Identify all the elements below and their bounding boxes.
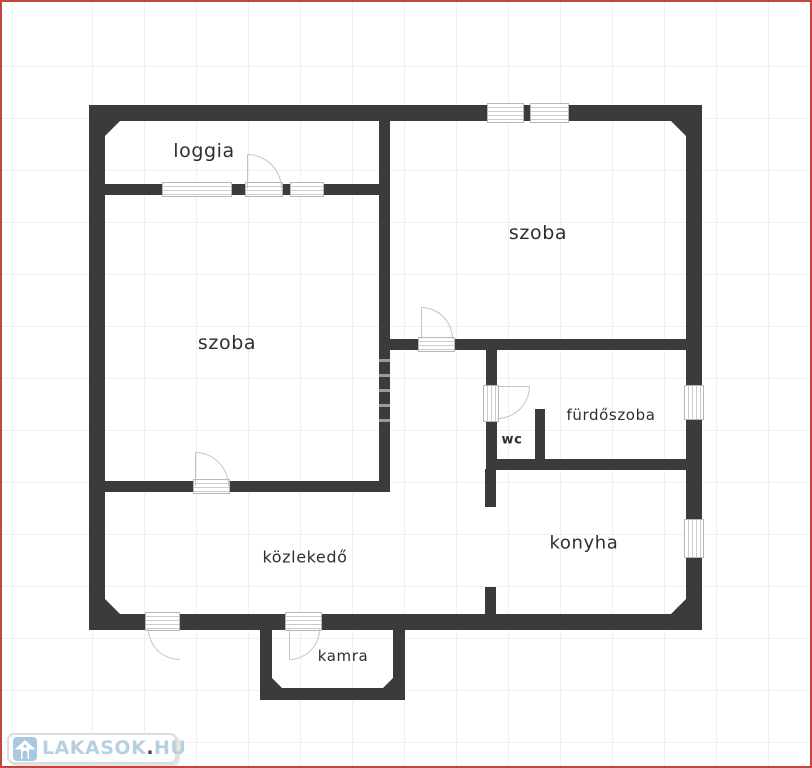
room-label-kozlekedo: közlekedő [262, 548, 347, 567]
door-leaf-szoba-right-icon [418, 337, 455, 352]
room-label-kamra: kamra [318, 647, 369, 665]
corner-bevel-top-right [671, 121, 686, 136]
room-label-wc: wc [502, 433, 523, 448]
house-icon [13, 737, 37, 761]
watermark-brand-left: LAKASOK [42, 737, 146, 759]
window-top-left-pane-icon [487, 103, 524, 123]
window-top-right-pane-icon [530, 103, 569, 123]
door-arc-szoba-right-icon [421, 307, 453, 339]
window-bathroom-icon [684, 385, 704, 420]
wall-outer-bottom [89, 614, 702, 630]
room-label-szoba-right: szoba [509, 222, 567, 244]
door-arc-kamra-icon [289, 629, 320, 660]
room-label-loggia: loggia [173, 140, 235, 162]
corner-bevel-kamra-left [272, 678, 282, 688]
door-arc-entry-icon [148, 629, 180, 660]
window-loggia-1-icon [162, 182, 232, 197]
wall-center-vertical [379, 121, 390, 492]
room-label-konyha: konyha [550, 533, 619, 554]
door-arc-loggia-icon [247, 154, 282, 189]
wall-kamra-bottom [260, 688, 405, 700]
wall-hall-top [105, 481, 390, 492]
wall-kitchen-left-upper [485, 469, 496, 507]
watermark-text: LAKASOK.HU [42, 739, 186, 758]
lakasok-watermark: LAKASOK.HU [7, 733, 177, 764]
corner-bevel-bottom-left [105, 599, 120, 614]
room-label-szoba-left: szoba [198, 332, 256, 354]
wall-bathroom-bottom [486, 459, 702, 470]
corner-bevel-bottom-right [671, 599, 686, 614]
room-label-furdoszoba: fürdőszoba [567, 406, 656, 424]
floor-plan-image: loggia szoba szoba fürdőszoba wc konyha … [0, 0, 812, 768]
wall-center-notches [379, 347, 390, 423]
watermark-brand-right: HU [154, 737, 186, 759]
door-arc-wc-icon [497, 386, 530, 419]
window-loggia-2-icon [290, 182, 324, 197]
corner-bevel-kamra-right [383, 678, 393, 688]
wall-outer-top [89, 105, 702, 121]
wall-outer-left [89, 105, 105, 630]
window-kitchen-icon [684, 519, 704, 558]
corner-bevel-top-left [105, 121, 120, 136]
watermark-dot: . [146, 737, 154, 759]
door-arc-szoba-left-icon [195, 452, 229, 486]
wall-kitchen-left-lower [485, 587, 496, 614]
